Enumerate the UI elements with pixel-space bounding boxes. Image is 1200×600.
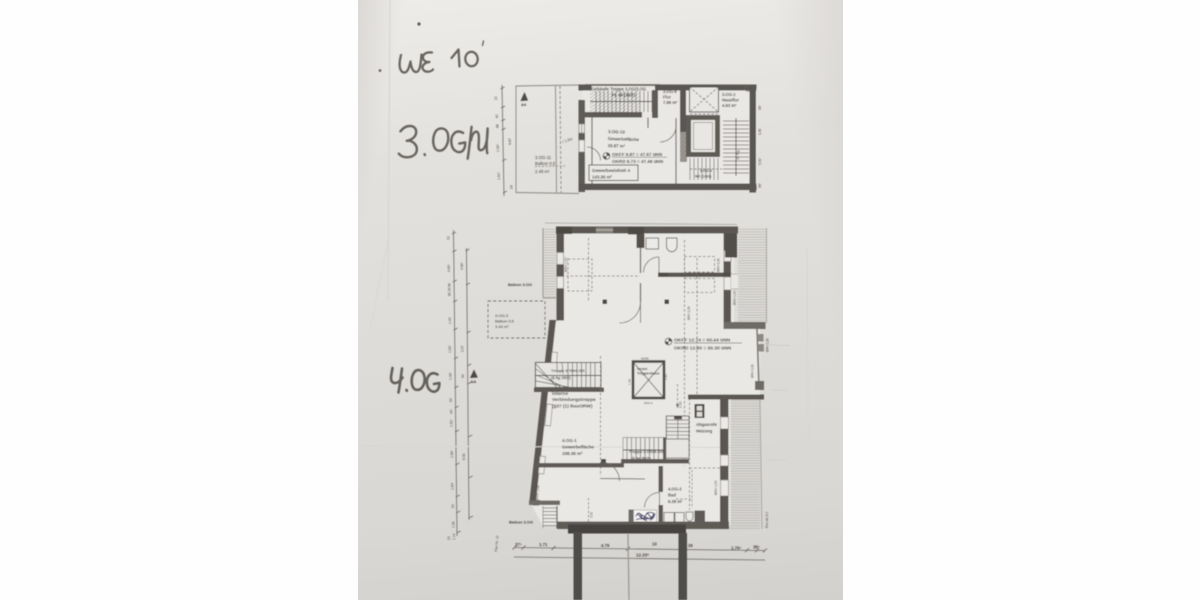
svg-text:neues: neues [637,367,647,371]
svg-text:18 Stg: 18 Stg [736,150,740,160]
svg-text:93: 93 [451,504,455,508]
svg-text:BRH 0,90: BRH 0,90 [564,257,568,272]
svg-text:60/90: 60/90 [641,357,649,361]
svg-text:6.08: 6.08 [462,453,466,460]
svg-text:88: 88 [496,124,500,128]
svg-text:4.OG-1: 4.OG-1 [562,438,577,443]
svg-text:Treppe 3.OG/4.OG: Treppe 3.OG/4.OG [629,449,663,454]
svg-text:4.79: 4.79 [601,543,610,548]
svg-text:4.68⁵: 4.68⁵ [460,262,464,270]
svg-text:1.40: 1.40 [448,317,452,324]
svg-text:(§ 9g 29/2): (§ 9g 29/2) [551,375,571,380]
svg-text:BRH 0,50: BRH 0,50 [687,306,691,320]
svg-text:Balkon 3.OG: Balkon 3.OG [508,282,532,287]
svg-text:4.OG-2: 4.OG-2 [668,487,682,492]
svg-text:2.48 m²: 2.48 m² [535,169,550,174]
svg-text:2.60: 2.60 [664,374,668,380]
svg-text:Balkon 0,5: Balkon 0,5 [535,161,556,166]
svg-text:Interne: Interne [552,391,568,397]
svg-text:BRH 0,30: BRH 0,30 [766,338,770,352]
svg-text:26: 26 [688,543,693,548]
svg-text:AA: AA [471,379,477,384]
svg-text:Gewerbeeinheit 4: Gewerbeeinheit 4 [592,168,630,173]
svg-text:1.88⁵: 1.88⁵ [450,450,454,458]
svg-text:Flur: Flur [663,95,671,100]
svg-text:1.71: 1.71 [539,542,548,547]
svg-text:37⁵: 37⁵ [515,542,522,547]
svg-text:Heizung: Heizung [696,429,713,434]
svg-text:90/2.0: 90/2.0 [644,401,653,405]
svg-text:Balkon 0,5: Balkon 0,5 [495,319,515,324]
svg-text:3.OG-9: 3.OG-9 [663,89,677,94]
svg-text:4.60⁵: 4.60⁵ [447,264,451,272]
svg-text:Abgasrohr: Abgasrohr [696,422,718,427]
svg-text:BRH 0,90: BRH 0,90 [751,364,755,378]
svg-text:3.OG-10: 3.OG-10 [608,129,626,135]
svg-text:40⁵: 40⁵ [449,408,453,414]
svg-text:38⁵: 38⁵ [758,182,762,188]
svg-text:2.07: 2.07 [461,345,465,352]
svg-text:1.93⁵: 1.93⁵ [496,143,500,152]
svg-text:OKRD 12.60 = 50.30 üNN: OKRD 12.60 = 50.30 üNN [674,346,732,352]
svg-text:Flur ab 3.0: Flur ab 3.0 [765,512,769,528]
svg-text:80: 80 [495,114,499,118]
svg-text:Balkon 3.OG: Balkon 3.OG [509,520,533,525]
svg-text:3.44 m²: 3.44 m² [495,324,509,329]
svg-text:2-10: 2-10 [679,401,683,408]
svg-text:1.53⁵: 1.53⁵ [450,419,454,427]
svg-text:38⁵: 38⁵ [753,545,760,550]
svg-text:Bad: Bad [668,493,676,498]
svg-text:Plan Nr. 13: Plan Nr. 13 [494,535,499,552]
svg-text:WC (18/2): WC (18/2) [695,175,712,179]
svg-text:A4: A4 [521,102,527,107]
svg-text:4.87: 4.87 [508,138,512,145]
svg-text:Hausflur: Hausflur [722,98,739,103]
svg-text:33: 33 [447,536,451,540]
svg-text:r 1.5m: r 1.5m [562,137,573,144]
svg-text:1.60⁵: 1.60⁵ [497,171,501,180]
svg-text:3.OG-11: 3.OG-11 [535,155,552,160]
svg-text:33: 33 [447,236,451,240]
svg-text:1.53⁵: 1.53⁵ [448,345,452,353]
svg-text:Verbindungstreppe: Verbindungstreppe [552,397,596,403]
svg-text:1.63⁵: 1.63⁵ [451,482,455,490]
svg-text:90: 90 [461,374,465,378]
svg-text:Treppe 3.TO/4.OG: Treppe 3.TO/4.OG [551,368,585,373]
svg-text:3.OG-1: 3.OG-1 [722,92,736,97]
svg-text:FL 98 (39/2): FL 98 (39/2) [612,93,636,98]
svg-text:3.OG-8: 3.OG-8 [700,169,712,173]
svg-text:1.35: 1.35 [628,379,632,385]
svg-text:1.36: 1.36 [758,129,762,135]
svg-text:OKFF 12.74 = 50.44 üNN: OKFF 12.74 = 50.44 üNN [674,338,731,344]
svg-text:68 20 66: 68 20 66 [447,283,451,296]
svg-text:Gewerbefläche: Gewerbefläche [562,445,595,450]
svg-text:BRH 0,90: BRH 0,90 [714,480,718,495]
svg-text:4.93 m²: 4.93 m² [722,103,737,108]
svg-text:BRH 0,90: BRH 0,90 [733,290,737,305]
svg-text:143.35 m²: 143.35 m² [592,175,613,180]
svg-text:OKFF 9.87 = 47.57 üNN: OKFF 9.87 = 47.57 üNN [612,152,663,157]
svg-text:1.79⁵: 1.79⁵ [731,546,741,551]
svg-text:12.20⁵: 12.20⁵ [636,553,649,558]
svg-text:Gebäude Treppe 3.OG/3.OG: Gebäude Treppe 3.OG/3.OG [591,87,646,92]
svg-text:10: 10 [652,542,657,547]
svg-text:1.14: 1.14 [452,533,456,540]
svg-text:60: 60 [449,398,453,402]
svg-text:24: 24 [510,185,514,189]
svg-text:7.96 m²: 7.96 m² [663,100,678,105]
svg-text:1.48⁵: 1.48⁵ [449,372,453,380]
svg-text:19.87 m²: 19.87 m² [607,143,625,149]
svg-text:BRH 0,90: BRH 0,90 [717,258,721,272]
svg-text:6.38 m²: 6.38 m² [668,499,683,504]
svg-text:108.36 m²: 108.36 m² [562,451,583,456]
svg-text:(§37 (1) BauORW): (§37 (1) BauORW) [552,404,593,410]
svg-text:Treppenhaus: Treppenhaus [637,372,659,376]
svg-text:2.01: 2.01 [590,512,594,518]
svg-text:5.01⁵: 5.01⁵ [758,157,762,165]
svg-text:OKRD 9.73 = 47.48 üNN: OKRD 9.73 = 47.48 üNN [612,159,664,164]
svg-text:1.08: 1.08 [451,521,455,528]
svg-text:20: 20 [494,96,498,100]
svg-text:4.OG-3: 4.OG-3 [495,313,509,318]
svg-text:38⁵: 38⁵ [758,104,762,110]
